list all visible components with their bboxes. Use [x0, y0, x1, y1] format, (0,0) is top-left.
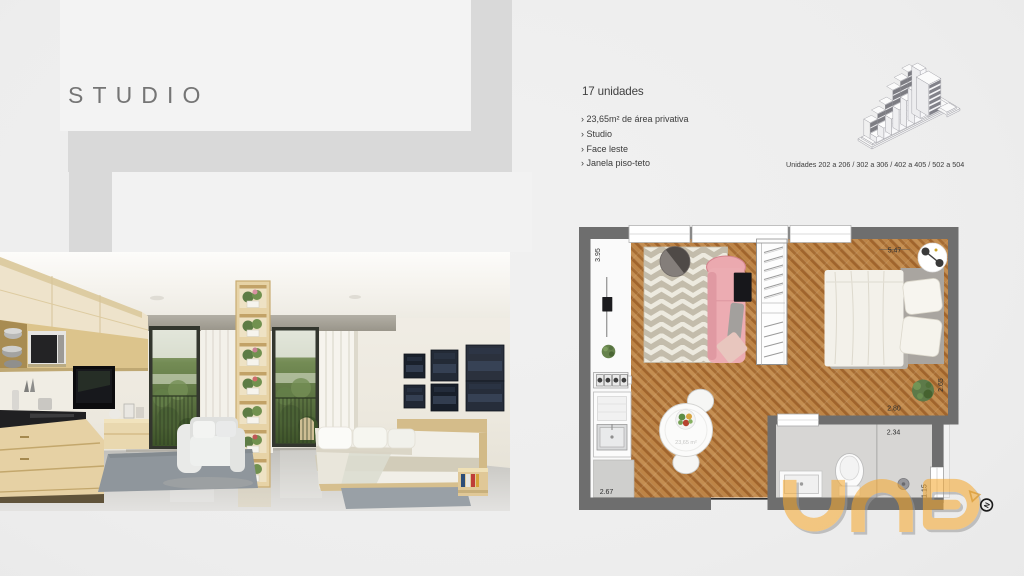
- svg-text:23,65 m²: 23,65 m²: [675, 440, 697, 446]
- svg-text:5.47: 5.47: [888, 247, 902, 254]
- svg-text:2.65: 2.65: [938, 378, 945, 392]
- svg-text:2.67: 2.67: [600, 489, 614, 496]
- svg-text:3.95: 3.95: [595, 248, 602, 262]
- svg-text:2.80: 2.80: [887, 405, 901, 412]
- svg-text:2.34: 2.34: [887, 429, 901, 436]
